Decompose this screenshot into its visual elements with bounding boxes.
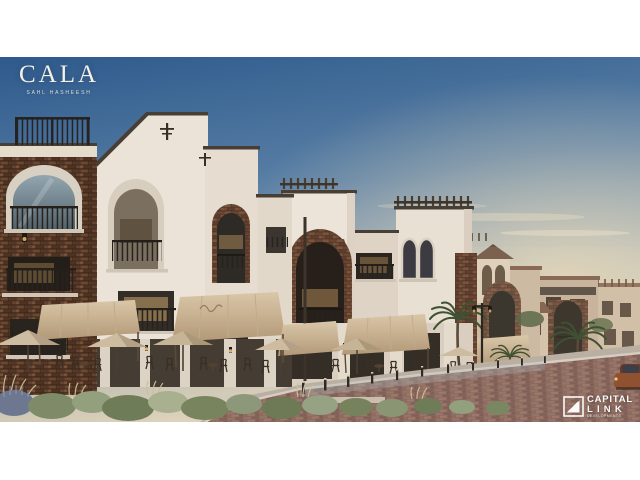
capital-link-logo: CAPITAL LINK DEVELOPMENTS xyxy=(563,395,633,419)
capital-link-tagline: DEVELOPMENTS xyxy=(587,415,633,419)
render-image: CALA SAHL HASHEESH CAPITAL LINK DEVELOPM… xyxy=(0,57,640,422)
page-canvas: CALA SAHL HASHEESH CAPITAL LINK DEVELOPM… xyxy=(0,0,640,480)
cala-wordmark: CALA xyxy=(19,62,99,88)
capital-link-icon xyxy=(563,396,584,417)
capital-link-name-line2: LINK xyxy=(587,405,633,415)
capital-link-name-line1: CAPITAL xyxy=(587,395,633,405)
cala-subtitle: SAHL HASHEESH xyxy=(19,90,99,96)
scene-illustration xyxy=(0,57,640,422)
building-foreground-stone xyxy=(0,117,97,397)
cala-logo: CALA SAHL HASHEESH xyxy=(19,62,99,96)
